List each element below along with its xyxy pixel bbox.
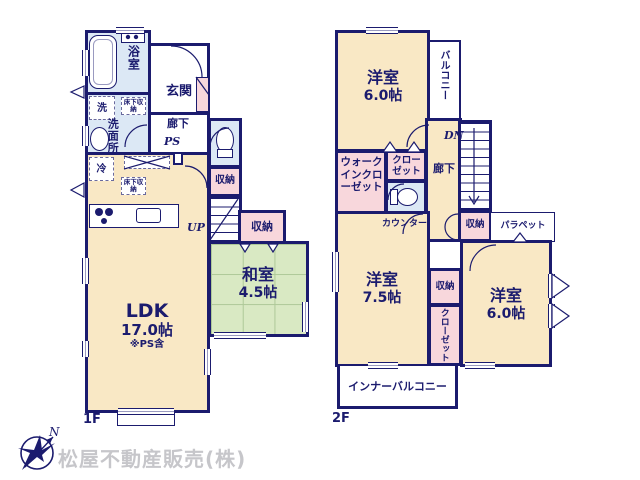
storage-mid-label: 収納 xyxy=(430,281,460,292)
window xyxy=(368,362,398,369)
closet-top-label: クローゼット xyxy=(391,155,422,178)
walk-in-closet-label: ウォークインクローゼット xyxy=(340,156,383,194)
ldk-label: LDK xyxy=(105,300,189,323)
counter-label: カウンター xyxy=(382,219,427,230)
bedroom-right-size: 6.0帖 xyxy=(483,306,529,323)
underfloor-storage-1: 床下収納 xyxy=(121,97,146,115)
bath-label: 浴室 xyxy=(126,45,140,71)
toilet-icon-2f xyxy=(397,188,418,206)
floor-2f-label: 2F xyxy=(332,411,350,426)
hallway-1f-label: 廊下 xyxy=(158,117,198,130)
parapet-label: パラペット xyxy=(494,221,552,232)
fridge-space: 冷 xyxy=(89,157,114,181)
compass-icon: N xyxy=(13,424,63,476)
room-ldk xyxy=(85,152,210,413)
window xyxy=(82,258,89,284)
storage-1f-a-label: 収納 xyxy=(210,175,240,187)
window xyxy=(214,332,266,339)
closet-mid-label: クローゼット xyxy=(438,308,449,362)
window xyxy=(116,27,144,34)
window xyxy=(82,50,89,76)
side-vent-mark xyxy=(71,183,84,197)
storage-1f-b-label: 収納 xyxy=(244,220,280,233)
kitchen-sink-icon xyxy=(136,208,161,223)
washroom-label: 洗面所 xyxy=(106,118,119,154)
stairs-up-label: UP xyxy=(187,221,205,234)
pipe-space-label: PS xyxy=(164,135,180,148)
entrance-label: 玄関 xyxy=(156,84,202,100)
stairs-1f xyxy=(208,195,242,243)
window xyxy=(332,252,339,292)
bedroom-top-size: 6.0帖 xyxy=(360,88,406,105)
kitchen-counter xyxy=(89,204,179,228)
window xyxy=(366,27,398,34)
floor-plan-page: { "colors": { "wall": "#1b1b6e", "room_c… xyxy=(0,0,640,480)
bathtub-icon xyxy=(89,35,117,89)
side-vent-mark xyxy=(71,86,84,98)
bedroom-left-label: 洋室 xyxy=(359,270,405,289)
pipe-space-shaft xyxy=(173,152,183,165)
window xyxy=(302,302,309,332)
washitsu-size: 4.5帖 xyxy=(227,285,289,302)
storage-hall-label: 収納 xyxy=(460,219,490,230)
ldk-note: ※PS含 xyxy=(105,339,189,351)
window xyxy=(204,349,211,375)
hallway-2f-label: 廊下 xyxy=(429,162,459,175)
washitsu-label: 和室 xyxy=(227,265,289,284)
window xyxy=(82,126,89,146)
laundry-space: 洗 xyxy=(89,96,115,120)
stairs-down-label: DN xyxy=(444,129,464,142)
bedroom-right-label: 洋室 xyxy=(483,286,529,305)
hanging-cabinet xyxy=(124,156,170,169)
window xyxy=(548,274,555,298)
floor-1f-label: 1F xyxy=(83,412,101,427)
window xyxy=(465,362,495,369)
window xyxy=(82,341,89,357)
ldk-size: 17.0帖 xyxy=(105,321,189,339)
inner-balcony-label: インナーバルコニー xyxy=(345,380,450,393)
bedroom-left-size: 7.5帖 xyxy=(359,290,405,307)
bedroom-top-label: 洋室 xyxy=(360,68,406,87)
window xyxy=(548,304,555,328)
underfloor-storage-2: 床下収納 xyxy=(121,177,146,195)
company-name: 松屋不動産販売(株) xyxy=(58,443,246,472)
svg-text:N: N xyxy=(48,425,60,439)
toilet-tank xyxy=(217,149,233,158)
window xyxy=(118,408,174,415)
balcony-label: バルコニー xyxy=(437,50,449,100)
